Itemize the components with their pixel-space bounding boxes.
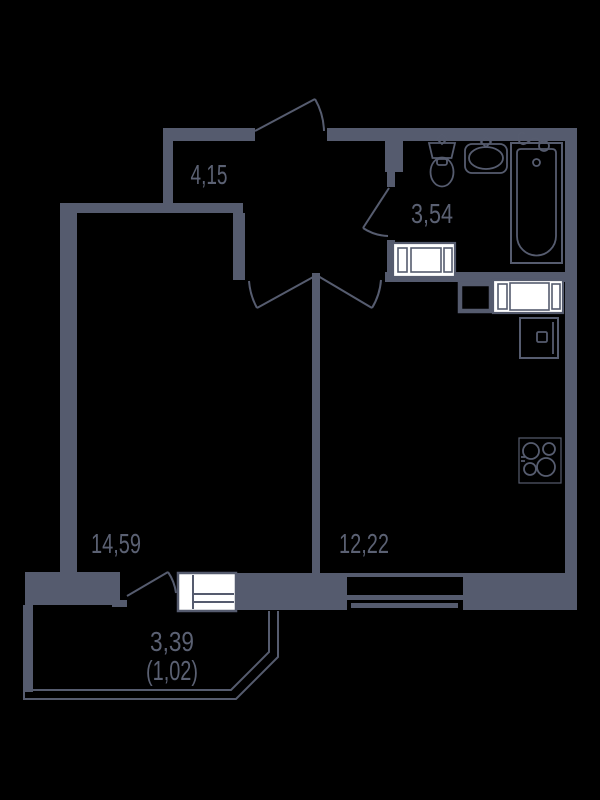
wall-hall-left [163, 141, 173, 208]
wall-left [60, 213, 77, 573]
living-door-leaf [257, 276, 315, 308]
wall-balcony-left [23, 605, 33, 692]
stove-controls [521, 457, 525, 461]
balcony-area-label: 3,39 [150, 626, 194, 657]
kitchen-window-line-outer [346, 573, 463, 577]
kitchen-sink-icon [520, 318, 558, 358]
kitchen-appliance-icon [493, 280, 563, 313]
bathroom-door-swing [363, 228, 388, 236]
washbasin-bowl [469, 147, 503, 169]
balcony-window-frame [178, 573, 236, 611]
kitchen-door-swing [372, 280, 381, 308]
bathtub-drain [533, 159, 540, 166]
balcony-area-reduced-label: (1,02) [146, 655, 198, 686]
kitchen-sink-drain [537, 332, 547, 342]
wall-top-hall [163, 128, 255, 141]
floor-plan: 4,15 3,54 14,59 12,22 3,39 (1,02) [0, 0, 600, 800]
bathroom-door-leaf [363, 188, 389, 228]
living-room-area-label: 14,59 [91, 528, 141, 559]
ventilation-duct-icon [460, 284, 491, 311]
kitchen-door-leaf [318, 276, 372, 308]
toilet-icon [429, 134, 455, 187]
kitchen-window-line-inner [351, 603, 458, 608]
wall-bottom-right [463, 573, 577, 610]
balcony-door-icon [127, 572, 176, 596]
wall-bath-corner [385, 141, 403, 172]
wall-bottom-left-step [112, 600, 127, 607]
bathroom-door-icon [363, 188, 389, 236]
washing-machine-icon [393, 243, 455, 277]
stove-burner-2 [543, 443, 555, 455]
wall-kitchen-partition [312, 273, 320, 573]
toilet-seat-detail [437, 159, 447, 165]
kitchen-area-label: 12,22 [339, 528, 389, 559]
kitchen-window-line-mid [346, 595, 463, 600]
kitchen-fixtures [460, 280, 563, 483]
stove-icon [519, 438, 561, 483]
living-door-swing [249, 281, 257, 308]
wall-top-right [327, 128, 577, 141]
wall-bottom-left [25, 572, 120, 605]
stove-burner-3 [524, 463, 536, 475]
bathtub-inner [517, 149, 556, 256]
wall-right [565, 141, 577, 610]
wall-hall-living-partition [233, 213, 245, 280]
entrance-door-swing [315, 99, 324, 131]
entrance-door-icon [255, 99, 324, 131]
balcony-door-swing [168, 572, 176, 593]
balcony-window-icon [178, 573, 236, 611]
bathtub-icon [511, 133, 562, 263]
walls [23, 128, 577, 692]
toilet-bowl [431, 158, 454, 187]
washbasin-icon [465, 137, 507, 173]
floor-plan-canvas: 4,15 3,54 14,59 12,22 3,39 (1,02) [0, 0, 600, 800]
entrance-door-leaf [255, 99, 315, 131]
wall-bottom-center [233, 573, 347, 610]
stove-burner-4 [537, 458, 555, 476]
wall-bath-stub-top [387, 172, 395, 187]
bathroom-area-label: 3,54 [411, 198, 453, 229]
balcony-door-leaf [127, 572, 168, 596]
wall-living-top [60, 203, 243, 213]
hallway-area-label: 4,15 [191, 159, 228, 190]
stove-burner-1 [523, 443, 539, 459]
